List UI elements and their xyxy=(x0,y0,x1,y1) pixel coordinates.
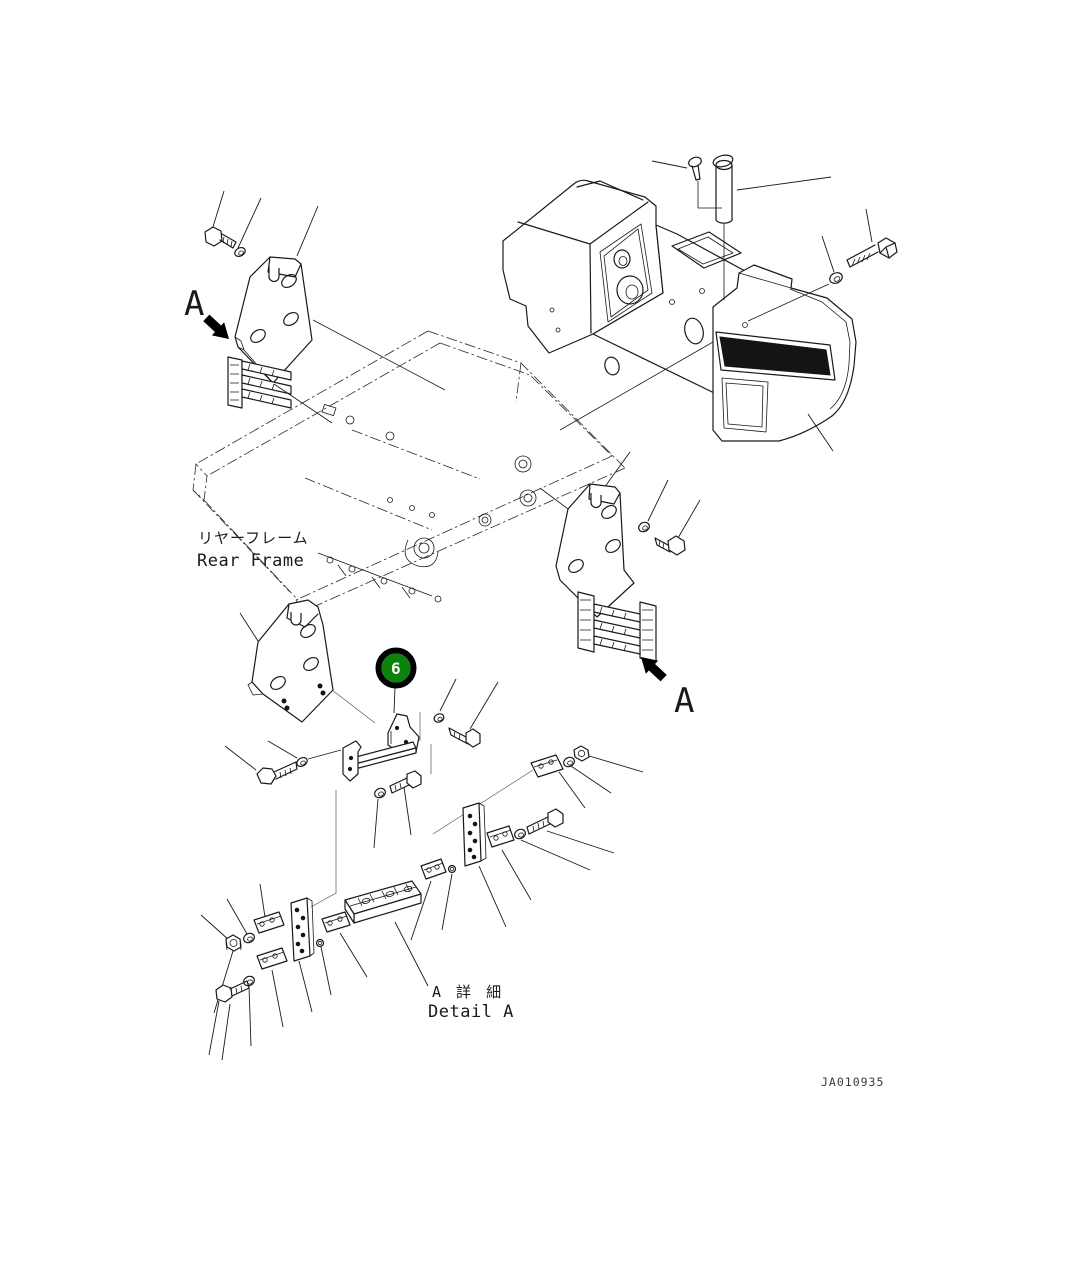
rear-frame-label-jp: リヤーフレーム xyxy=(198,529,309,547)
detail-washer-bolt-lower-part xyxy=(373,771,421,848)
step-tread-part xyxy=(345,881,428,986)
detail-plate-part xyxy=(240,600,333,722)
diagram-sheet: A A xyxy=(0,0,1092,1261)
view-arrow-a-bottom: A xyxy=(635,650,695,721)
detail-bottom-left-cluster xyxy=(201,884,367,1060)
rear-frame-label-en: Rear Frame xyxy=(197,551,304,571)
counterweight-drawing xyxy=(503,180,856,451)
view-direction-arrow-icon xyxy=(200,311,235,345)
detail-plate-washer-nut-part xyxy=(531,746,643,808)
long-bolt-part xyxy=(847,209,897,267)
view-a-bottom-label: A xyxy=(674,681,694,721)
drawing-number: JA010935 xyxy=(821,1075,884,1089)
parts-diagram-canvas: A A xyxy=(0,0,1092,1261)
left-bracket-drawing xyxy=(205,191,445,423)
view-arrow-a-top: A xyxy=(184,284,235,346)
part-callout-number: 6 xyxy=(391,659,401,678)
part-callout-6[interactable]: 6 xyxy=(379,651,414,714)
detail-a-label-en: Detail A xyxy=(428,1002,514,1022)
detail-a-view: 6 xyxy=(201,600,643,1060)
view-a-top-label: A xyxy=(184,284,204,324)
step-support-bracket-part xyxy=(343,714,419,781)
set-screw-part xyxy=(652,156,722,208)
detail-a-label-jp: A 詳 細 xyxy=(432,983,504,1001)
detail-middle-fasteners-part xyxy=(463,803,614,927)
detail-washer-bolt-upper-part xyxy=(433,679,498,747)
detail-bolt-left-part xyxy=(225,741,341,784)
right-bracket-drawing xyxy=(540,452,700,662)
